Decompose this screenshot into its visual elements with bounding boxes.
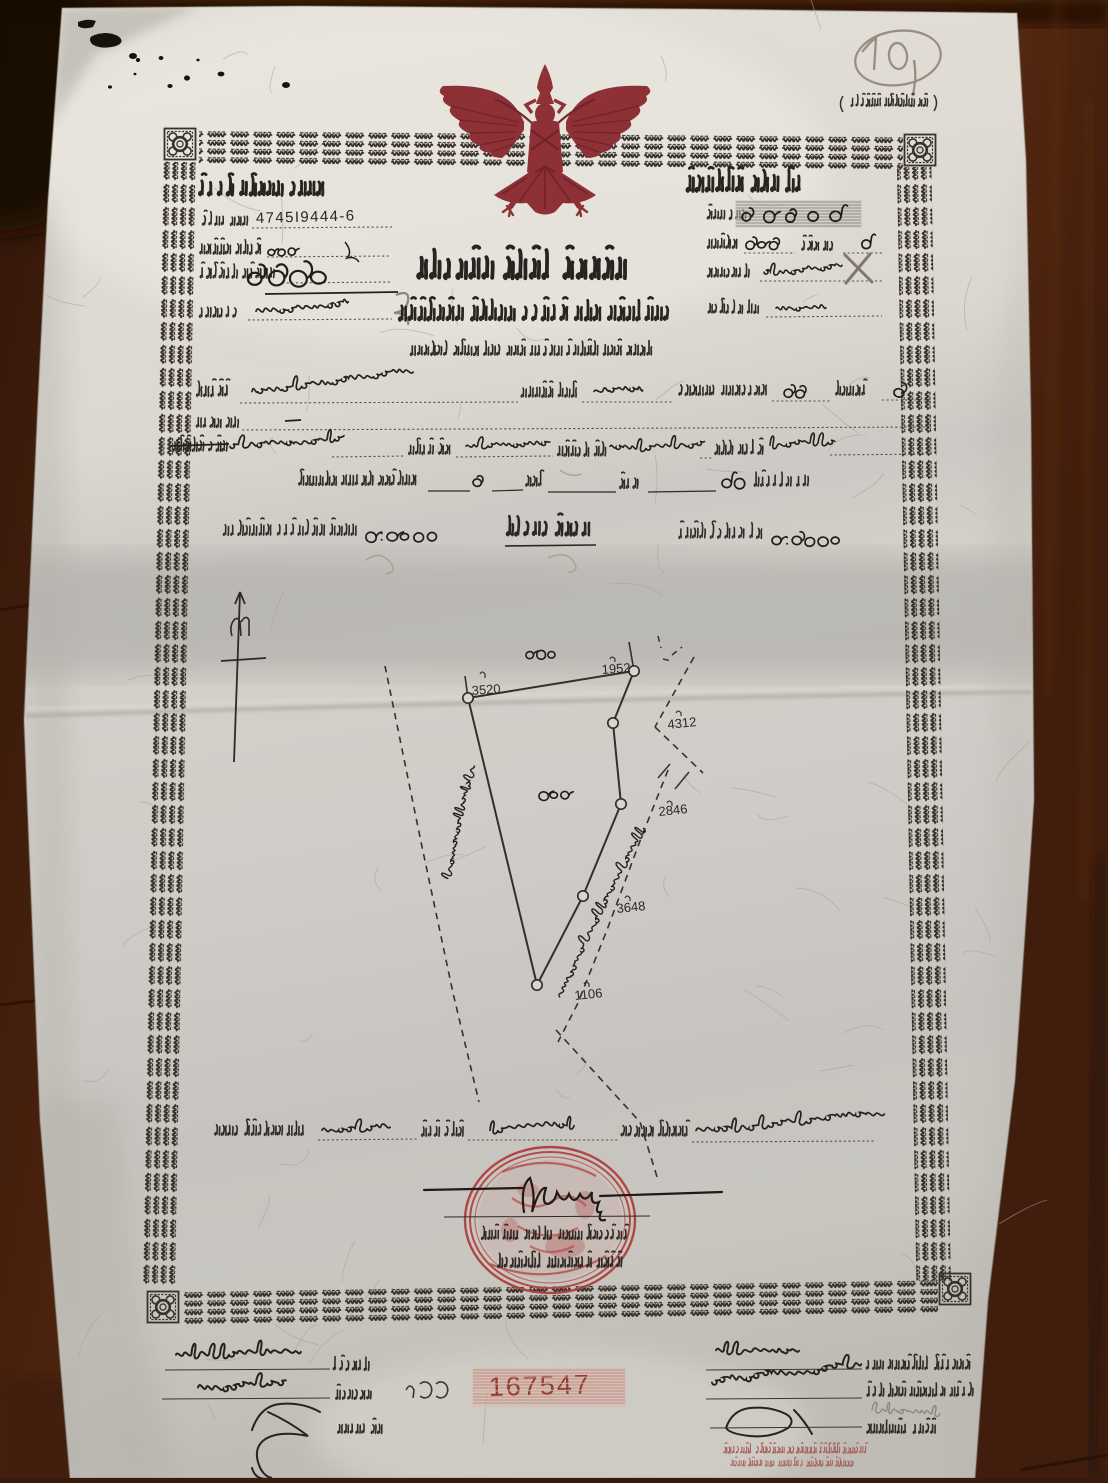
svg-text:1106: 1106 xyxy=(574,985,603,1003)
svg-text:167547: 167547 xyxy=(488,1369,591,1402)
svg-text:3648: 3648 xyxy=(616,898,646,916)
svg-text:2846: 2846 xyxy=(658,801,688,819)
svg-text:4312: 4312 xyxy=(667,714,697,732)
svg-text:4745I9444-6: 4745I9444-6 xyxy=(256,207,356,227)
svg-text:3520: 3520 xyxy=(471,681,501,698)
svg-text:1952: 1952 xyxy=(601,660,631,677)
